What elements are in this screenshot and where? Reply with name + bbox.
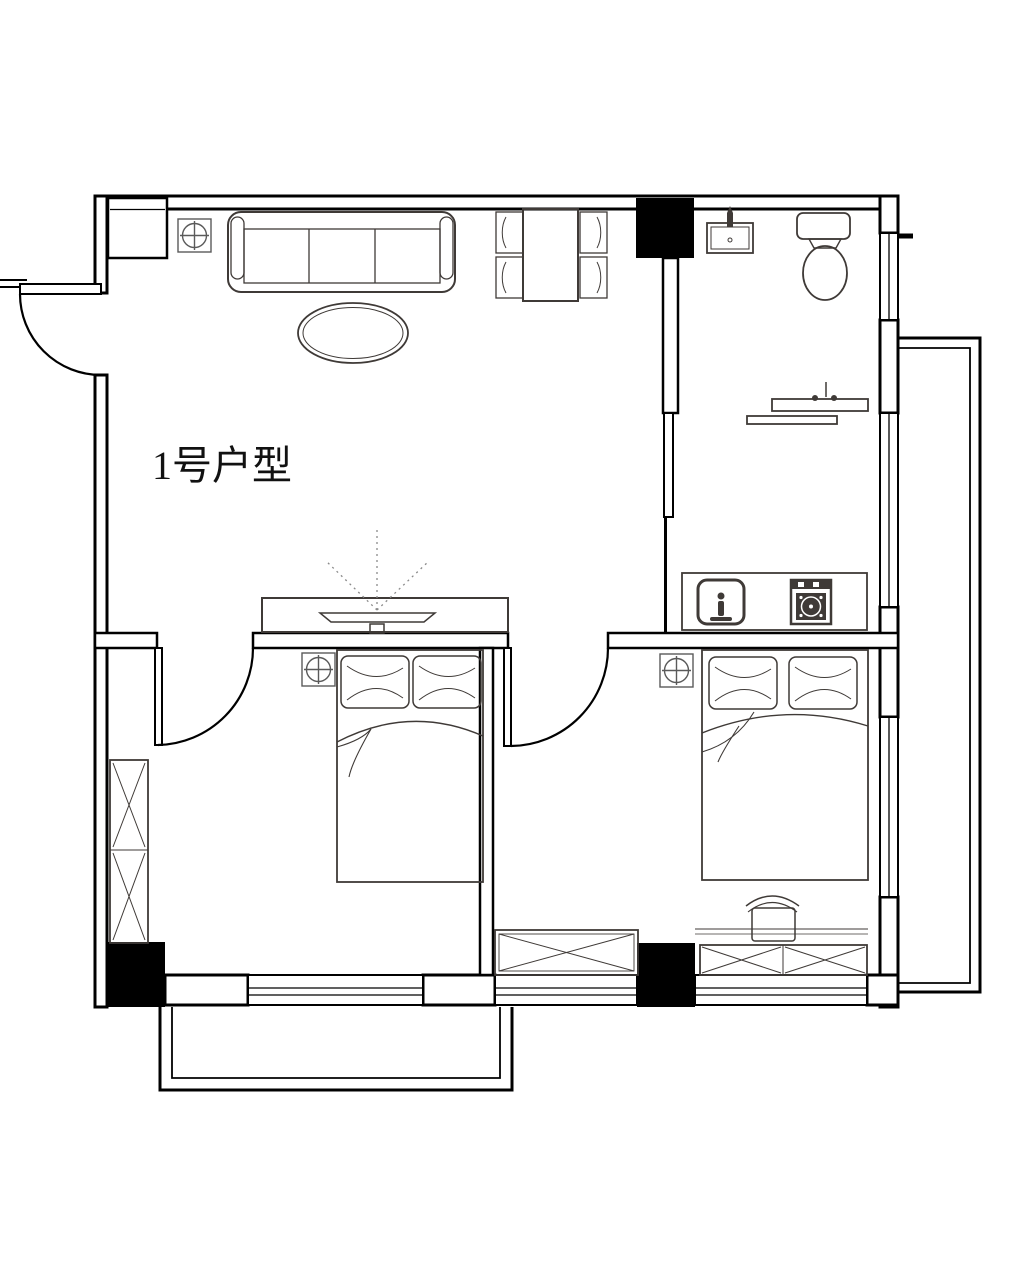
- dining-chair-back: [502, 217, 506, 248]
- left-bedroom-furniture: [110, 650, 638, 975]
- entry-shaft: [108, 198, 167, 258]
- right-wall-segment-3: [880, 607, 898, 717]
- vanity-shelf-upper: [772, 399, 868, 411]
- left-bedroom-door-leaf: [155, 648, 162, 745]
- tv-cabinet: [262, 598, 508, 632]
- bottom-wall-segment-1: [165, 975, 248, 1005]
- left-bed-frame: [337, 650, 483, 882]
- tv-sightline-left: [326, 561, 377, 610]
- cooktop-dot: [819, 614, 822, 617]
- sofa-seat: [244, 229, 440, 283]
- unit-type-label: 1号户型: [152, 443, 292, 488]
- bathroom-sink-faucet: [727, 213, 733, 227]
- entry-door-swing-arc: [20, 294, 101, 375]
- hall-wall-right: [608, 633, 898, 648]
- left-bed-blanket-fold: [349, 729, 371, 777]
- bathroom-left-wall: [663, 258, 678, 413]
- left-bed-pillow-right: [413, 656, 481, 708]
- dining-chair-back: [597, 262, 601, 293]
- bottom-window-center: [495, 975, 637, 1005]
- dining-table: [523, 209, 578, 301]
- dining-chair-back: [502, 262, 506, 293]
- vanity-shelf-lower: [747, 416, 837, 424]
- cooktop-dot: [819, 596, 822, 599]
- cooktop-knob-right: [813, 582, 819, 587]
- cooktop-dot: [799, 614, 802, 617]
- right-wall-segment-2: [880, 320, 898, 413]
- low-cabinet-right-x2: [785, 947, 865, 973]
- left-wall-below-entry: [95, 375, 107, 1007]
- dining-chair: [580, 257, 607, 298]
- cooktop-knob-left: [798, 582, 804, 587]
- column-marker-right-bedroom: [660, 654, 693, 687]
- low-cabinet-right-x1: [702, 947, 781, 973]
- top-structural-column: [636, 198, 694, 258]
- dining-chair: [496, 212, 523, 253]
- left-bedroom-door-swing-arc: [158, 648, 253, 745]
- entry-door-leaf: [20, 284, 101, 294]
- bottom-window-left-bedroom: [248, 975, 423, 1005]
- toilet-tank: [797, 213, 850, 239]
- right-bed-pillow-right: [789, 657, 857, 709]
- desk-chair-back: [746, 896, 799, 906]
- right-bed-pillow-left: [709, 657, 777, 709]
- living-room-furniture: [228, 209, 607, 633]
- hall-wall-under-tv: [253, 633, 508, 648]
- tv: [320, 613, 435, 622]
- wardrobe-x-lower: [113, 853, 145, 940]
- bathroom-sink-drain: [728, 238, 732, 242]
- coffee-table-inner: [303, 308, 403, 359]
- wardrobe: [110, 760, 148, 943]
- kitchen-counter: [682, 573, 867, 630]
- right-balcony-inner: [898, 348, 970, 983]
- floor-plan-drawing: 1号户型: [0, 0, 1024, 1280]
- kitchen-sink-base: [710, 617, 732, 621]
- walls: [0, 196, 913, 1007]
- right-bedroom-door-swing-arc: [511, 648, 608, 746]
- right-bed-blanket-edge: [702, 715, 868, 733]
- column-marker-left-bedroom: [302, 653, 335, 686]
- floor-plan-page: 1号户型: [0, 0, 1024, 1280]
- right-balcony-outer: [898, 338, 980, 992]
- desk-chair-seat: [752, 908, 795, 941]
- right-bed-blanket-fold: [702, 712, 754, 752]
- kitchen-sink-faucet-head: [718, 593, 725, 600]
- sofa: [228, 212, 455, 292]
- dining-chair: [580, 212, 607, 253]
- bottom-center-structural-column: [637, 943, 695, 1007]
- bottom-window-right-bedroom: [695, 975, 867, 1005]
- bathroom-fixtures: [707, 206, 868, 424]
- vanity-faucet-handle-right: [831, 395, 837, 401]
- toilet-bowl: [803, 246, 847, 300]
- kitchen-fixtures: [682, 573, 867, 630]
- vanity-faucet-handle-left: [812, 395, 818, 401]
- dining-chair-back: [597, 217, 601, 248]
- cooktop-dot: [799, 596, 802, 599]
- cooktop-control-band: [791, 580, 831, 589]
- sofa-armrest-right: [440, 217, 453, 279]
- tv-sightline-right: [377, 561, 429, 610]
- right-wall-segment-1: [880, 196, 898, 233]
- bottom-left-structural-column: [108, 942, 165, 1007]
- sofa-armrest-left: [231, 217, 244, 279]
- coffee-table: [298, 303, 408, 363]
- bathroom-sliding-door: [664, 413, 673, 517]
- wardrobe-x-upper: [113, 763, 145, 847]
- hall-wall-left-stub: [95, 633, 157, 648]
- bottom-balcony-inner: [172, 1007, 500, 1078]
- cooktop-burner-center: [809, 605, 813, 609]
- right-bedroom-furniture: [695, 650, 868, 975]
- bottom-wall-segment-3: [867, 975, 898, 1005]
- dining-chair: [496, 257, 523, 298]
- column-marker-entry: [178, 219, 211, 252]
- low-cabinet-left-x: [499, 934, 634, 971]
- left-wall-above-entry: [95, 196, 107, 293]
- right-bed-frame: [702, 650, 868, 880]
- left-bed-pillow-left: [341, 656, 409, 708]
- right-bedroom-door-leaf: [504, 648, 511, 746]
- doors: [20, 284, 673, 746]
- bottom-wall-segment-2: [423, 975, 495, 1005]
- top-exterior-wall: [95, 196, 898, 209]
- bedroom-divider-wall: [480, 648, 493, 975]
- kitchen-sink-faucet-stem: [718, 601, 724, 616]
